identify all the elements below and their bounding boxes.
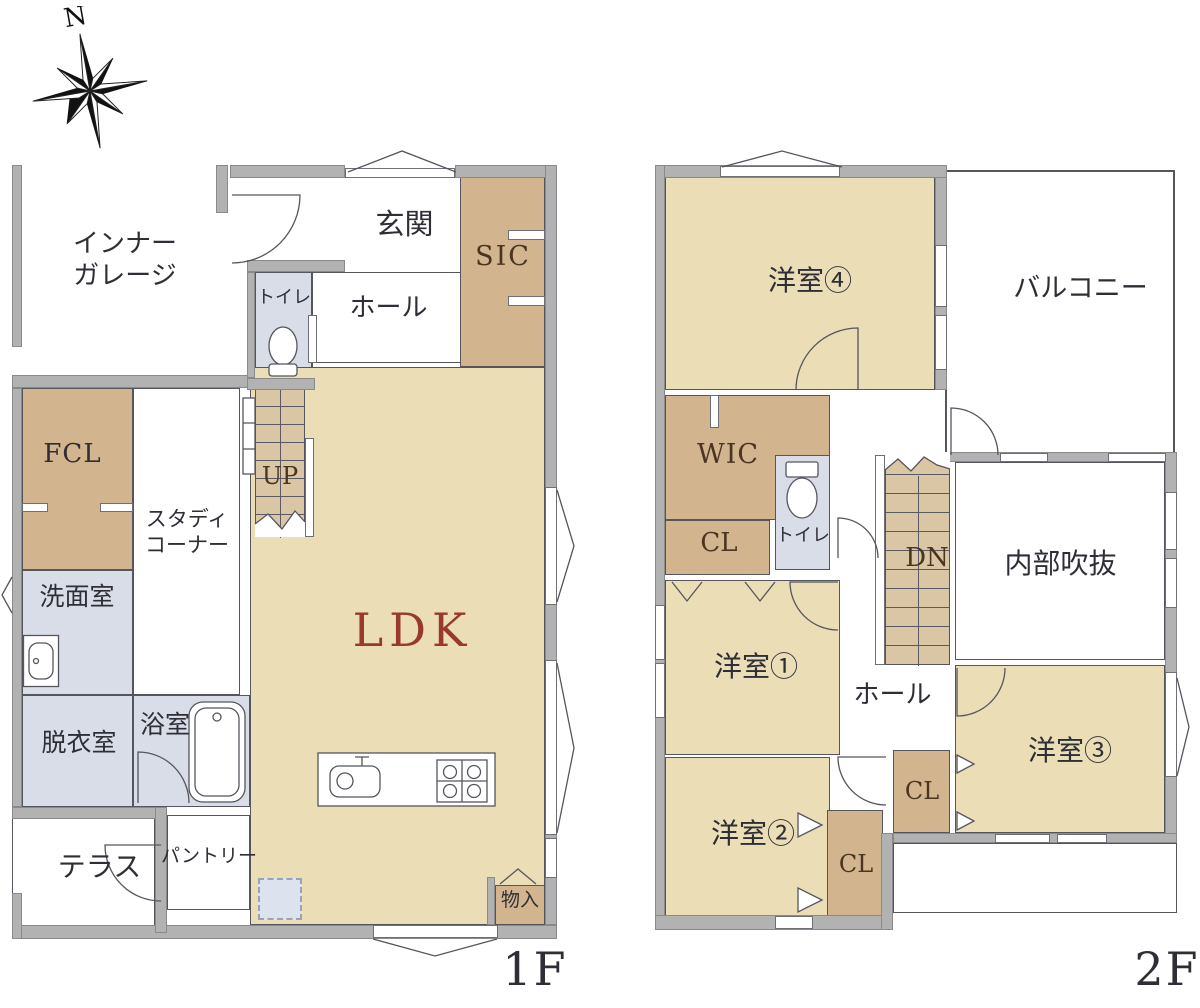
label-stairs-down: DN (898, 538, 956, 578)
wall-gap (875, 455, 885, 665)
label-study-line2: コーナー (145, 532, 229, 558)
label-hall-1f: ホール (336, 291, 441, 325)
label-hall-2f: ホール (845, 678, 940, 712)
roof-area (893, 843, 1177, 913)
wall-segment (881, 833, 893, 930)
window (655, 605, 665, 660)
window (1108, 453, 1166, 462)
floor-label-2f: 2F (1122, 942, 1200, 998)
window (775, 916, 813, 929)
toilet-icon (260, 320, 306, 378)
label-dressing: 脱衣室 (30, 726, 128, 760)
floor-label-1f: 1F (490, 942, 580, 998)
compass-north-label: N (62, 6, 90, 34)
label-pantry: パントリー (168, 843, 250, 871)
window (720, 166, 840, 177)
label-washroom: 洗面室 (28, 581, 126, 613)
label-fcl: FCL (35, 436, 110, 472)
toilet-icon (779, 460, 825, 522)
label-study-corner: スタディ コーナー (138, 500, 236, 564)
window (655, 663, 665, 718)
label-garage-line2: ガレージ (73, 260, 176, 293)
kitchen-counter-icon (317, 752, 497, 809)
label-genkan: 玄関 (352, 205, 457, 243)
label-terrace: テラス (42, 846, 157, 886)
shelf-notch (710, 395, 719, 428)
label-storage-1f: 物入 (497, 887, 543, 915)
label-cl-a: CL (690, 524, 748, 562)
label-toilet-1f: トイレ (256, 286, 312, 310)
label-stairs-up: UP (256, 460, 304, 492)
wall-segment (655, 915, 893, 930)
window (1057, 834, 1107, 843)
label-void: 内部吹抜 (993, 543, 1128, 583)
room-balcony (945, 170, 1175, 457)
label-sic: SIC (468, 238, 538, 276)
wall-segment (655, 165, 665, 925)
label-yoshitsu3: 洋室③ (1010, 730, 1130, 770)
bathtub-icon (187, 700, 249, 806)
window (1165, 492, 1177, 550)
label-yoshitsu1: 洋室① (696, 646, 816, 686)
sink-icon (22, 634, 60, 688)
window (1165, 672, 1177, 777)
label-cl-b: CL (898, 773, 946, 809)
window (1165, 558, 1177, 608)
window (935, 315, 947, 370)
label-study-line1: スタディ (146, 506, 229, 532)
window (1000, 453, 1048, 462)
window (995, 834, 1050, 843)
label-garage-line1: インナー (73, 228, 177, 261)
label-yoshitsu2: 洋室② (693, 813, 813, 853)
label-bath: 浴室 (136, 710, 194, 740)
label-yoshitsu4: 洋室④ (750, 260, 870, 300)
compass-icon: N (20, 6, 170, 166)
label-cl-c: CL (833, 846, 879, 882)
floorplan-canvas: N インナー ガレージ 玄関 SIC トイレ ホール FCL スタディ コーナー… (0, 0, 1200, 1008)
label-toilet-2f: トイレ (776, 523, 830, 549)
label-wic: WIC (683, 436, 773, 474)
label-garage: インナー ガレージ (55, 222, 195, 298)
label-balcony: バルコニー (998, 270, 1163, 308)
label-ldk: LDK (350, 603, 475, 659)
window (935, 245, 947, 307)
